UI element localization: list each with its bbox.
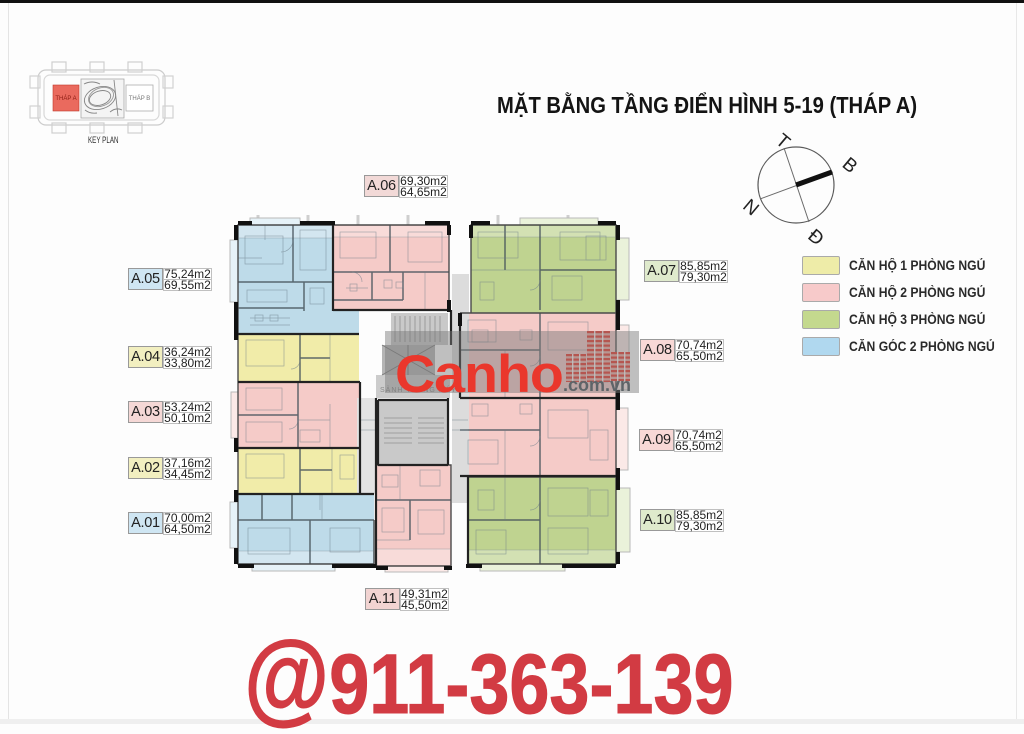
- svg-text:THÁP A: THÁP A: [55, 95, 76, 102]
- svg-text:THÁP B: THÁP B: [129, 95, 151, 102]
- svg-text:B: B: [838, 154, 861, 178]
- svg-text:N: N: [739, 195, 763, 220]
- svg-text:T: T: [771, 130, 794, 154]
- svg-text:Đ: Đ: [804, 225, 828, 250]
